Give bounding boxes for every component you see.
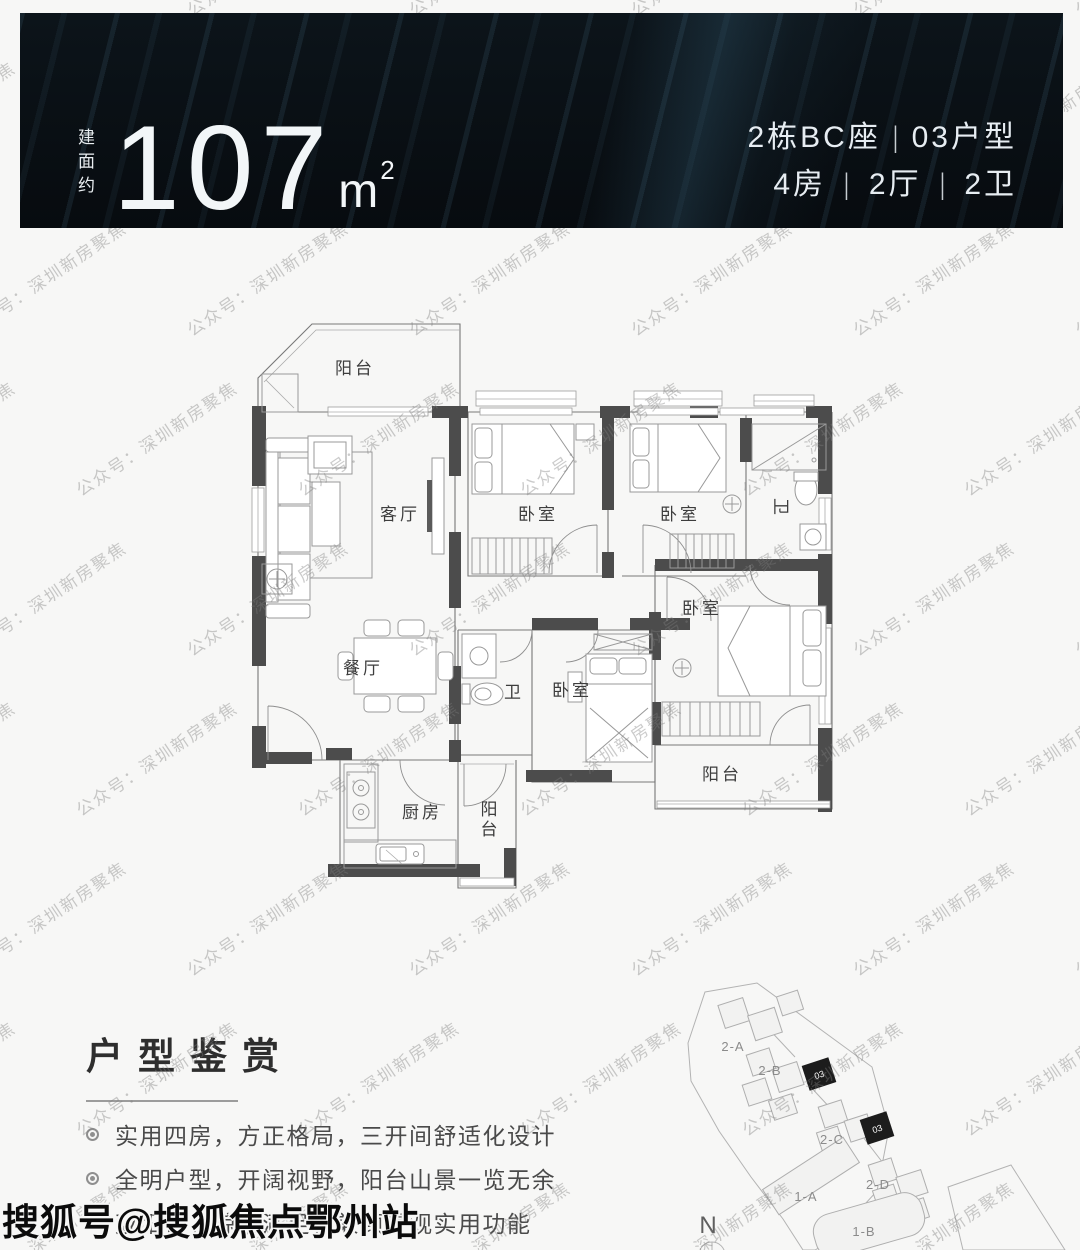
room-label-dining: 餐厅 [343, 659, 383, 678]
room-label-bedroom2: 卧室 [660, 505, 700, 524]
feature-text: 全明户型，开阔视野，阳台山景一览无余 [115, 1161, 556, 1195]
room-label-living: 客厅 [380, 505, 420, 524]
site-buildings [718, 990, 930, 1250]
area-prefix-label: 建面约 [72, 128, 97, 200]
unit-spec-line: 4房|2厅|2卫 [747, 161, 1017, 208]
section-title: 户型鉴赏 [86, 1026, 294, 1080]
watermark-text: 公众号：深圳新房聚焦 [0, 534, 131, 661]
watermark-text: 公众号：深圳新房聚焦 [0, 54, 20, 181]
room-label-bedroom1: 卧室 [518, 505, 558, 524]
room-label-bath2: 卫 [504, 683, 524, 702]
separator-bar: | [930, 161, 956, 208]
watermark-text: 公众号：深圳新房聚焦 [0, 214, 131, 341]
building-label-2d: 2-D [866, 1177, 890, 1192]
compass-icon [699, 1242, 725, 1250]
bedroom2-furniture [630, 424, 741, 568]
flyer-page: 公众号：深圳新房聚焦公众号：深圳新房聚焦公众号：深圳新房聚焦公众号：深圳新房聚焦… [0, 0, 1080, 1250]
unit-info: 2栋BC座|03户型 4房|2厅|2卫 [747, 114, 1017, 208]
bathroom1-furniture [752, 424, 826, 550]
watermark-text: 公众号：深圳新房聚焦 [958, 374, 1080, 501]
baths-count: 2卫 [964, 168, 1017, 201]
area-unit: m 2 [338, 172, 394, 213]
area-value: 107 [113, 120, 334, 216]
bathroom2-furniture [462, 634, 503, 705]
room-label-bedroom4: 卧室 [552, 681, 592, 700]
room-label-bath1: 卫 [771, 498, 790, 518]
watermark-text: 公众号：深圳新房聚焦 [847, 854, 1018, 981]
watermark-text: 公众号：深圳新房聚焦 [1069, 0, 1080, 21]
area-unit-m: m [338, 172, 378, 213]
separator-bar: | [887, 114, 905, 161]
bullet-dot-icon [86, 1128, 99, 1141]
bedroom1-furniture [472, 424, 594, 574]
area-unit-exponent: 2 [380, 157, 394, 183]
north-label: N [699, 1212, 716, 1239]
site-plan: 03 03 2-A 2-B 2-C 2-D 1-A 1-B N [645, 965, 1080, 1250]
building-label-2b: 2-B [758, 1063, 781, 1078]
watermark-text: 公众号：深圳新房聚焦 [847, 214, 1018, 341]
room-label-kitchen: 厨房 [402, 803, 442, 822]
bullet-dot-icon [86, 1172, 99, 1185]
building-label-2a: 2-A [721, 1039, 744, 1054]
watermark-text: 公众号：深圳新房聚焦 [0, 854, 131, 981]
watermark-text: 公众号：深圳新房聚焦 [1069, 214, 1080, 341]
room-label-bedroom3: 卧室 [682, 599, 722, 618]
building-label-1b: 1-B [852, 1224, 875, 1239]
room-label-balcony-service: 阳台 [478, 800, 497, 840]
feature-text: 实用四房，方正格局，三开间舒适化设计 [115, 1117, 556, 1151]
unit-number-label: 03户型 [912, 121, 1017, 154]
building-label: 2栋BC座 [747, 121, 880, 154]
watermark-text: 公众号：深圳新房聚焦 [958, 694, 1080, 821]
watermark-text: 公众号：深圳新房聚焦 [1069, 854, 1080, 981]
separator-bar: | [835, 161, 861, 208]
unit-type-line: 2栋BC座|03户型 [747, 114, 1017, 161]
watermark-text: 公众号：深圳新房聚焦 [70, 374, 241, 501]
watermark-text: 公众号：深圳新房聚焦 [0, 374, 20, 501]
watermark-text: 公众号：深圳新房聚焦 [0, 1014, 20, 1141]
building-label-1a: 1-A [794, 1189, 817, 1204]
floor-plan: 阳台 客厅 卧室 卧室 卫 卧室 餐厅 卫 卧室 阳台 厨房 阳台 [250, 312, 872, 907]
room-label-balcony-right: 阳台 [702, 765, 742, 784]
watermark-text: 公众号：深圳新房聚焦 [0, 694, 20, 821]
watermark-text: 公众号：深圳新房聚焦 [70, 694, 241, 821]
rooms-count: 4房 [773, 168, 826, 201]
halls-count: 2厅 [869, 168, 922, 201]
header-banner: 建面约 107 m 2 2栋BC座|03户型 4房|2厅|2卫 [20, 13, 1063, 228]
area-group: 建面约 107 m 2 [72, 120, 395, 216]
building-label-2c: 2-C [820, 1132, 844, 1147]
title-underline [86, 1100, 238, 1102]
watermark-text: 公众号：深圳新房聚焦 [847, 534, 1018, 661]
sohu-watermark: 搜狐号@搜狐焦点鄂州站 [2, 1192, 419, 1246]
watermark-text: 公众号：深圳新房聚焦 [1069, 534, 1080, 661]
room-label-balcony-top: 阳台 [335, 359, 375, 378]
feature-item: 实用四房，方正格局，三开间舒适化设计 [86, 1112, 556, 1156]
